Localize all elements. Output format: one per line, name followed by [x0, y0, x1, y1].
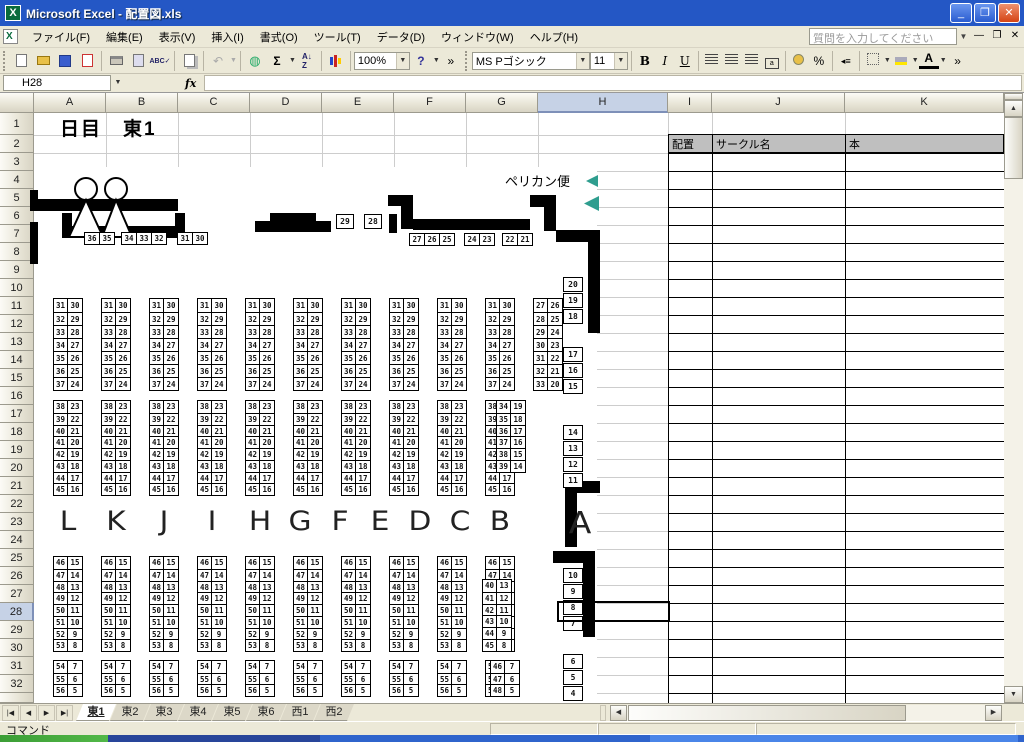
wall-booth-box: 24 — [464, 233, 480, 246]
booth-table: 4013411242114310449458 — [482, 579, 512, 652]
wall-booth-box: 25 — [439, 233, 455, 246]
decrease-indent-icon[interactable]: ◂≡ — [836, 51, 856, 71]
spelling-button[interactable]: ABC✓ — [149, 50, 171, 72]
block-letter-I: I — [196, 506, 229, 537]
booth-table: 547556565 — [341, 660, 371, 697]
column-header-B[interactable]: B — [106, 93, 178, 113]
booth-table: 3130322933283427352636253724 — [197, 298, 227, 391]
right-wall-booth-box: 15 — [563, 379, 583, 394]
booth-table: 3130322933283427352636253724 — [293, 298, 323, 391]
booth-table: 38233922402141204219431844174516 — [245, 400, 275, 496]
column-header-I[interactable]: I — [668, 93, 712, 113]
scroll-up-icon[interactable]: ▲ — [1004, 100, 1023, 117]
booth-table: 547556565 — [149, 660, 179, 697]
bold-button[interactable]: B — [635, 51, 655, 71]
merge-center-icon[interactable]: a — [762, 51, 782, 71]
row-header-21[interactable]: 21 — [0, 477, 34, 495]
menu-item-データD[interactable]: データ(D) — [369, 26, 433, 48]
row-header-6[interactable]: 6 — [0, 207, 34, 225]
wall-booth-box: 27 — [409, 233, 425, 246]
status-bar: コマンド — [0, 721, 1024, 735]
column-header-H[interactable]: H — [538, 93, 668, 113]
right-wall-booth-box: 18 — [563, 309, 583, 324]
booth-table: 38233922402141204219431844174516 — [197, 400, 227, 496]
menu-item-ヘルプH[interactable]: ヘルプ(H) — [522, 26, 586, 48]
right-wall-booth-box: 11 — [563, 473, 583, 488]
hscroll-thumb[interactable] — [628, 705, 906, 721]
wall-segment — [30, 222, 38, 264]
tab-next-icon[interactable]: ▶ — [38, 705, 55, 721]
sheet-tab-東2[interactable]: 東2 — [110, 704, 150, 721]
menu-item-挿入I[interactable]: 挿入(I) — [203, 26, 251, 48]
wall-segment — [255, 221, 331, 232]
column-header-A[interactable]: A — [34, 93, 106, 113]
formatting-options-icon[interactable]: » — [947, 50, 969, 72]
block-letter-K: K — [100, 506, 133, 537]
row-header-17[interactable]: 17 — [0, 405, 34, 423]
toolbar-options-icon[interactable]: » — [440, 50, 462, 72]
menu-item-書式O[interactable]: 書式(O) — [252, 26, 306, 48]
block-letter-J: J — [148, 506, 181, 537]
menu-item-ファイルF[interactable]: ファイル(F) — [24, 26, 98, 48]
workbook-icon — [3, 29, 18, 44]
italic-button[interactable]: I — [655, 51, 675, 71]
select-all-corner[interactable] — [0, 93, 34, 113]
sheet-tab-西2[interactable]: 西2 — [314, 704, 354, 721]
wall-segment — [583, 551, 595, 637]
restore-button[interactable]: ❐ — [974, 3, 996, 23]
name-box-dropdown-icon[interactable]: ▼ — [111, 75, 125, 91]
fill-color-icon[interactable] — [891, 51, 911, 71]
row-header-33-partial[interactable] — [0, 693, 34, 703]
row-header-7[interactable]: 7 — [0, 225, 34, 243]
sheet-tab-東1[interactable]: 東1 — [76, 704, 116, 721]
right-wall-booth-box: 13 — [563, 441, 583, 456]
row-header-1[interactable]: 1 — [0, 113, 34, 135]
island-booth-box: 28 — [364, 214, 382, 229]
sheet-tab-西1[interactable]: 西1 — [280, 704, 320, 721]
formula-input[interactable] — [204, 75, 1022, 91]
tab-prev-icon[interactable]: ◀ — [20, 705, 37, 721]
undo-button[interactable]: ↶ — [207, 50, 229, 72]
toolbar-drag-handle[interactable] — [3, 51, 7, 71]
question-input[interactable]: 質問を入力してください — [809, 28, 957, 45]
row-header-15[interactable]: 15 — [0, 369, 34, 387]
sheet-title: 日目 東1 — [60, 114, 157, 141]
booth-table: 3130322933283427352636253724 — [101, 298, 131, 391]
row-header-25[interactable]: 25 — [0, 549, 34, 567]
column-header-K[interactable]: K — [845, 93, 1004, 113]
booth-table: 461547144813491250115110529538 — [197, 556, 227, 652]
block-letter-C: C — [444, 506, 477, 537]
new-document-button[interactable] — [10, 50, 32, 72]
percent-button[interactable]: % — [809, 51, 829, 71]
open-button[interactable] — [32, 50, 54, 72]
wall-segment — [413, 219, 530, 230]
row-header-20[interactable]: 20 — [0, 459, 34, 477]
island-booth-box: 29 — [336, 214, 354, 229]
sheet-tabs-bar: |◀◀▶▶|東1東2東3東4東5東6西1西2◀▶ — [0, 703, 1024, 721]
hscroll-left-icon[interactable]: ◀ — [610, 705, 627, 721]
row-header-8[interactable]: 8 — [0, 243, 34, 261]
row-header-16[interactable]: 16 — [0, 387, 34, 405]
doc-minimize-button[interactable]: — — [971, 29, 987, 44]
booth-table: 3130322933283427352636253724 — [53, 298, 83, 391]
row-header-31[interactable]: 31 — [0, 657, 34, 675]
copy-button[interactable] — [178, 50, 200, 72]
block-letter-B: B — [484, 506, 517, 537]
underline-button[interactable]: U — [675, 51, 695, 71]
start-button-sliver[interactable] — [0, 735, 108, 742]
chevron-down-icon[interactable]: ▼ — [957, 28, 970, 45]
row-header-5[interactable]: 5 — [0, 189, 34, 207]
booth-table: 38233922402141204219431844174516 — [437, 400, 467, 496]
column-header-J[interactable]: J — [712, 93, 845, 113]
wall-booth-box: 31 — [177, 232, 193, 245]
row-header-3[interactable]: 3 — [0, 153, 34, 171]
booth-table: 547556565 — [53, 660, 83, 697]
column-header-C[interactable]: C — [178, 93, 250, 113]
row-header-24[interactable]: 24 — [0, 531, 34, 549]
sheet-tab-東6[interactable]: 東6 — [246, 704, 286, 721]
minimize-button[interactable]: _ — [950, 3, 972, 23]
name-box[interactable]: H28 — [3, 75, 111, 91]
right-wall-booth-box: 6 — [563, 654, 583, 669]
vscroll-split-handle[interactable] — [1004, 93, 1023, 100]
row-header-32[interactable]: 32 — [0, 675, 34, 693]
wall-segment — [544, 195, 556, 231]
currency-icon[interactable] — [789, 51, 809, 71]
row-header-22[interactable]: 22 — [0, 495, 34, 513]
booth-table: 38233922402141204219431844174516 — [341, 400, 371, 496]
row-header-23[interactable]: 23 — [0, 513, 34, 531]
menu-item-ウィンドウW[interactable]: ウィンドウ(W) — [433, 26, 522, 48]
doc-close-button[interactable]: ✕ — [1007, 29, 1023, 44]
help-button[interactable]: ? — [410, 50, 432, 72]
row-header-30[interactable]: 30 — [0, 639, 34, 657]
right-wall-booth-box: 20 — [563, 277, 583, 292]
booth-table: 461547144813491250115110529538 — [293, 556, 323, 652]
menu-item-ツールT[interactable]: ツール(T) — [306, 26, 369, 48]
right-wall-booth-box: 4 — [563, 686, 583, 701]
taskbar-window-button[interactable] — [650, 735, 1018, 742]
booth-table: 467476485 — [490, 660, 520, 697]
right-wall-booth-box: 5 — [563, 670, 583, 685]
right-wall-booth-box: 12 — [563, 457, 583, 472]
row-header-19[interactable]: 19 — [0, 441, 34, 459]
booth-table: 547556565 — [101, 660, 131, 697]
align-center-icon[interactable] — [722, 51, 742, 71]
font-name-combo[interactable]: MS Pゴシック▼ — [472, 52, 590, 70]
sheet-tab-東5[interactable]: 東5 — [212, 704, 252, 721]
block-letter-L: L — [52, 506, 85, 537]
tab-last-icon[interactable]: ▶| — [56, 705, 73, 721]
print-preview-button[interactable] — [127, 50, 149, 72]
wall-booth-box: 36 — [84, 232, 100, 245]
booth-table: 461547144813491250115110529538 — [389, 556, 419, 652]
right-wall-booth-box: 19 — [563, 293, 583, 308]
row-header-10[interactable]: 10 — [0, 279, 34, 297]
row-header-14[interactable]: 14 — [0, 351, 34, 369]
borders-icon[interactable] — [863, 51, 883, 71]
booth-table: 547556565 — [245, 660, 275, 697]
booth-table: 3130322933283427352636253724 — [341, 298, 371, 391]
formula-bar: H28 ▼ fx — [0, 74, 1024, 93]
lookup-header-2: 本 — [845, 134, 1004, 153]
vscroll-thumb[interactable] — [1004, 117, 1023, 179]
wall-booth-box: 23 — [479, 233, 495, 246]
lookup-header-1: サークル名 — [712, 134, 846, 153]
tab-split-handle[interactable] — [600, 705, 606, 721]
menu-item-編集E[interactable]: 編集(E) — [98, 26, 151, 48]
booth-table: 3130322933283427352636253724 — [437, 298, 467, 391]
booth-table: 547556565 — [389, 660, 419, 697]
wall-booth-box: 32 — [151, 232, 167, 245]
right-wall-booth-box: 17 — [563, 347, 583, 362]
permission-button[interactable] — [76, 50, 98, 72]
selected-cell-H28[interactable] — [557, 601, 670, 622]
row-header-12[interactable]: 12 — [0, 315, 34, 333]
align-left-icon[interactable] — [702, 51, 722, 71]
block-letter-D: D — [404, 506, 437, 537]
booth-table: 3130322933283427352636253724 — [149, 298, 179, 391]
delivery-label: ペリカン便 — [505, 171, 570, 190]
booth-table: 461547144813491250115110529538 — [341, 556, 371, 652]
print-button[interactable] — [105, 50, 127, 72]
menu-bar: ファイル(F)編集(E)表示(V)挿入(I)書式(O)ツール(T)データ(D)ウ… — [0, 26, 1024, 48]
right-wall-booth-box: 10 — [563, 568, 583, 583]
booth-table: 3130322933283427352636253724 — [389, 298, 419, 391]
booth-table: 461547144813491250115110529538 — [245, 556, 275, 652]
row-header-18[interactable]: 18 — [0, 423, 34, 441]
booth-table: 341935183617371638153914 — [496, 400, 526, 473]
row-header-9[interactable]: 9 — [0, 261, 34, 279]
booth-table: 3130322933283427352636253724 — [245, 298, 275, 391]
row-header-26[interactable]: 26 — [0, 567, 34, 585]
wall-booth-box: 33 — [136, 232, 152, 245]
wall-booth-box: 30 — [192, 232, 208, 245]
standard-toolbar: ABC✓ ↶ ▼ ◍ Σ ▼ A↓Z 100%▼ ? ▼ » MS Pゴシック▼… — [0, 48, 1024, 74]
fx-icon: fx — [185, 77, 196, 90]
row-header-4[interactable]: 4 — [0, 171, 34, 189]
row-header-13[interactable]: 13 — [0, 333, 34, 351]
sheet-tab-東4[interactable]: 東4 — [178, 704, 218, 721]
lookup-header-0: 配置 — [668, 134, 713, 153]
zoom-combo[interactable]: 100%▼ — [354, 52, 410, 70]
title-bar: X Microsoft Excel - 配置図.xls _ ❐ ✕ — [0, 0, 1024, 26]
wall-booth-box: 26 — [424, 233, 440, 246]
right-wall-booth-box: 9 — [563, 584, 583, 599]
wall-segment — [588, 230, 600, 333]
booth-table: 38233922402141204219431844174516 — [53, 400, 83, 496]
hscroll-right-icon[interactable]: ▶ — [985, 705, 1002, 721]
block-letter-G: G — [284, 506, 317, 537]
doc-restore-button[interactable]: ❐ — [989, 29, 1005, 44]
windows-taskbar[interactable] — [0, 735, 1024, 742]
row-header-29[interactable]: 29 — [0, 621, 34, 639]
block-letter-E: E — [364, 506, 397, 537]
column-header-F[interactable]: F — [394, 93, 466, 113]
column-header-G[interactable]: G — [466, 93, 538, 113]
right-wall-booth-box: 14 — [563, 425, 583, 440]
column-header-D[interactable]: D — [250, 93, 322, 113]
booth-table: 461547144813491250115110529538 — [437, 556, 467, 652]
booth-table: 38233922402141204219431844174516 — [293, 400, 323, 496]
block-letter-A: A — [564, 506, 597, 541]
excel-window: X Microsoft Excel - 配置図.xls _ ❐ ✕ ファイル(F… — [0, 0, 1024, 742]
booth-table: 461547144813491250115110529538 — [149, 556, 179, 652]
tab-first-icon[interactable]: |◀ — [2, 705, 19, 721]
wall-booth-box: 21 — [517, 233, 533, 246]
right-wall-booth-box: 16 — [563, 363, 583, 378]
autosum-button[interactable]: Σ — [266, 50, 288, 72]
booth-table: 547556565 — [293, 660, 323, 697]
booth-table: 461547144813491250115110529538 — [53, 556, 83, 652]
row-header-27[interactable]: 27 — [0, 585, 34, 603]
column-header-E[interactable]: E — [322, 93, 394, 113]
excel-app-icon: X — [5, 5, 21, 21]
font-size-combo[interactable]: 11▼ — [590, 52, 628, 70]
booth-table: 38233922402141204219431844174516 — [389, 400, 419, 496]
row-header-28[interactable]: 28 — [0, 603, 34, 621]
font-color-icon[interactable]: A — [919, 52, 939, 69]
wall-segment — [30, 190, 38, 211]
formatting-drag-handle[interactable] — [465, 51, 469, 71]
wall-segment — [389, 214, 397, 233]
wall-booth-box: 34 — [121, 232, 137, 245]
booth-table: 547556565 — [437, 660, 467, 697]
scroll-down-icon[interactable]: ▼ — [1004, 686, 1023, 703]
align-right-icon[interactable] — [742, 51, 762, 71]
menu-item-表示V[interactable]: 表示(V) — [151, 26, 204, 48]
sheet-tab-東3[interactable]: 東3 — [144, 704, 184, 721]
worksheet-area: ABCDEFGHIJK12345678910111213141516171819… — [0, 93, 1024, 703]
hyperlink-globe-icon[interactable]: ◍ — [244, 50, 266, 72]
row-header-11[interactable]: 11 — [0, 297, 34, 315]
window-title: Microsoft Excel - 配置図.xls — [26, 5, 181, 22]
close-button[interactable]: ✕ — [998, 3, 1020, 23]
wall-segment — [401, 195, 413, 229]
row-header-2[interactable]: 2 — [0, 135, 34, 153]
booth-table: 547556565 — [197, 660, 227, 697]
booth-table: 461547144813491250115110529538 — [101, 556, 131, 652]
wall-booth-box: 35 — [99, 232, 115, 245]
block-letter-H: H — [244, 506, 277, 537]
save-button[interactable] — [54, 50, 76, 72]
chart-wizard-button[interactable] — [325, 50, 347, 72]
booth-table: 38233922402141204219431844174516 — [149, 400, 179, 496]
block-letter-F: F — [324, 506, 357, 537]
booth-table: 38233922402141204219431844174516 — [101, 400, 131, 496]
wall-booth-box: 22 — [502, 233, 518, 246]
booth-table: 2726282529243023312232213320 — [533, 298, 563, 391]
sort-ascending-button[interactable]: A↓Z — [296, 50, 318, 72]
vscroll-track[interactable] — [1004, 117, 1023, 686]
booth-table: 3130322933283427352636253724 — [485, 298, 515, 391]
